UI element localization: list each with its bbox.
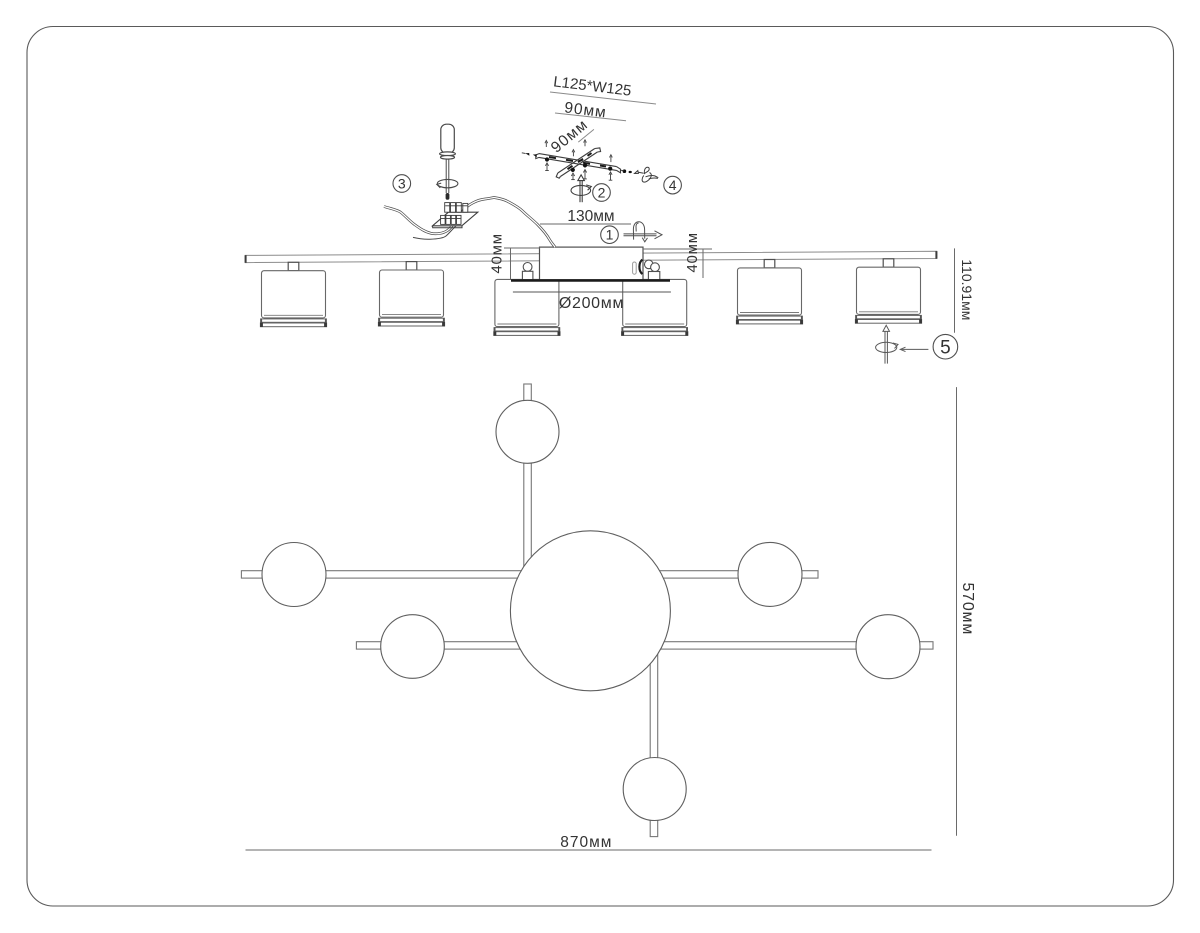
svg-text:2: 2 bbox=[598, 185, 606, 201]
svg-text:40мм: 40мм bbox=[684, 232, 701, 273]
svg-text:870мм: 870мм bbox=[560, 834, 612, 851]
svg-text:110.91мм: 110.91мм bbox=[959, 259, 975, 320]
svg-text:130мм: 130мм bbox=[567, 208, 614, 225]
svg-text:570мм: 570мм bbox=[959, 582, 976, 635]
svg-text:40мм: 40мм bbox=[489, 233, 506, 274]
svg-text:5: 5 bbox=[940, 338, 951, 359]
svg-text:4: 4 bbox=[669, 177, 677, 193]
svg-text:Ø200мм: Ø200мм bbox=[559, 295, 624, 312]
svg-text:1: 1 bbox=[606, 227, 614, 243]
svg-text:3: 3 bbox=[398, 176, 406, 192]
